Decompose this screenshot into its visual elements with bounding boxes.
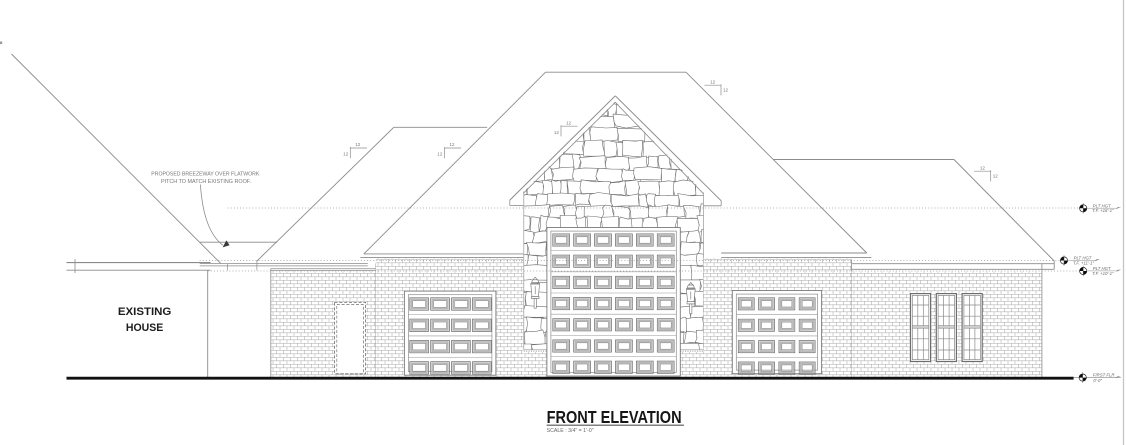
svg-text:12: 12 xyxy=(566,120,572,125)
svg-text:FIRST FLR: FIRST FLR xyxy=(1093,372,1115,377)
svg-text:0'-0": 0'-0" xyxy=(1093,378,1102,383)
svg-text:12: 12 xyxy=(723,87,729,92)
svg-text:T.F. +11'-1": T.F. +11'-1" xyxy=(1073,260,1094,265)
svg-text:HOUSE: HOUSE xyxy=(126,322,164,334)
svg-text:PITCH TO MATCH EXISTING ROOF.: PITCH TO MATCH EXISTING ROOF. xyxy=(161,179,251,185)
svg-text:12: 12 xyxy=(437,152,443,157)
svg-text:12: 12 xyxy=(355,142,361,147)
svg-text:T.F. +10'-1": T.F. +10'-1" xyxy=(1092,271,1114,276)
svg-text:SCALE : 3/4" = 1'-0": SCALE : 3/4" = 1'-0" xyxy=(547,428,594,434)
svg-text:12: 12 xyxy=(343,152,349,157)
svg-text:12: 12 xyxy=(993,173,999,178)
svg-text:EXISTING: EXISTING xyxy=(118,306,172,318)
svg-text:12: 12 xyxy=(449,142,455,147)
svg-text:PROPOSED BREEZEWAY OVER FLATWO: PROPOSED BREEZEWAY OVER FLATWORK xyxy=(151,172,259,178)
svg-text:12: 12 xyxy=(980,165,986,170)
svg-text:12: 12 xyxy=(554,130,560,135)
svg-text:FRONT ELEVATION: FRONT ELEVATION xyxy=(547,407,682,427)
svg-text:T.F. +16'-1": T.F. +16'-1" xyxy=(1092,208,1114,213)
svg-text:12: 12 xyxy=(710,79,716,84)
